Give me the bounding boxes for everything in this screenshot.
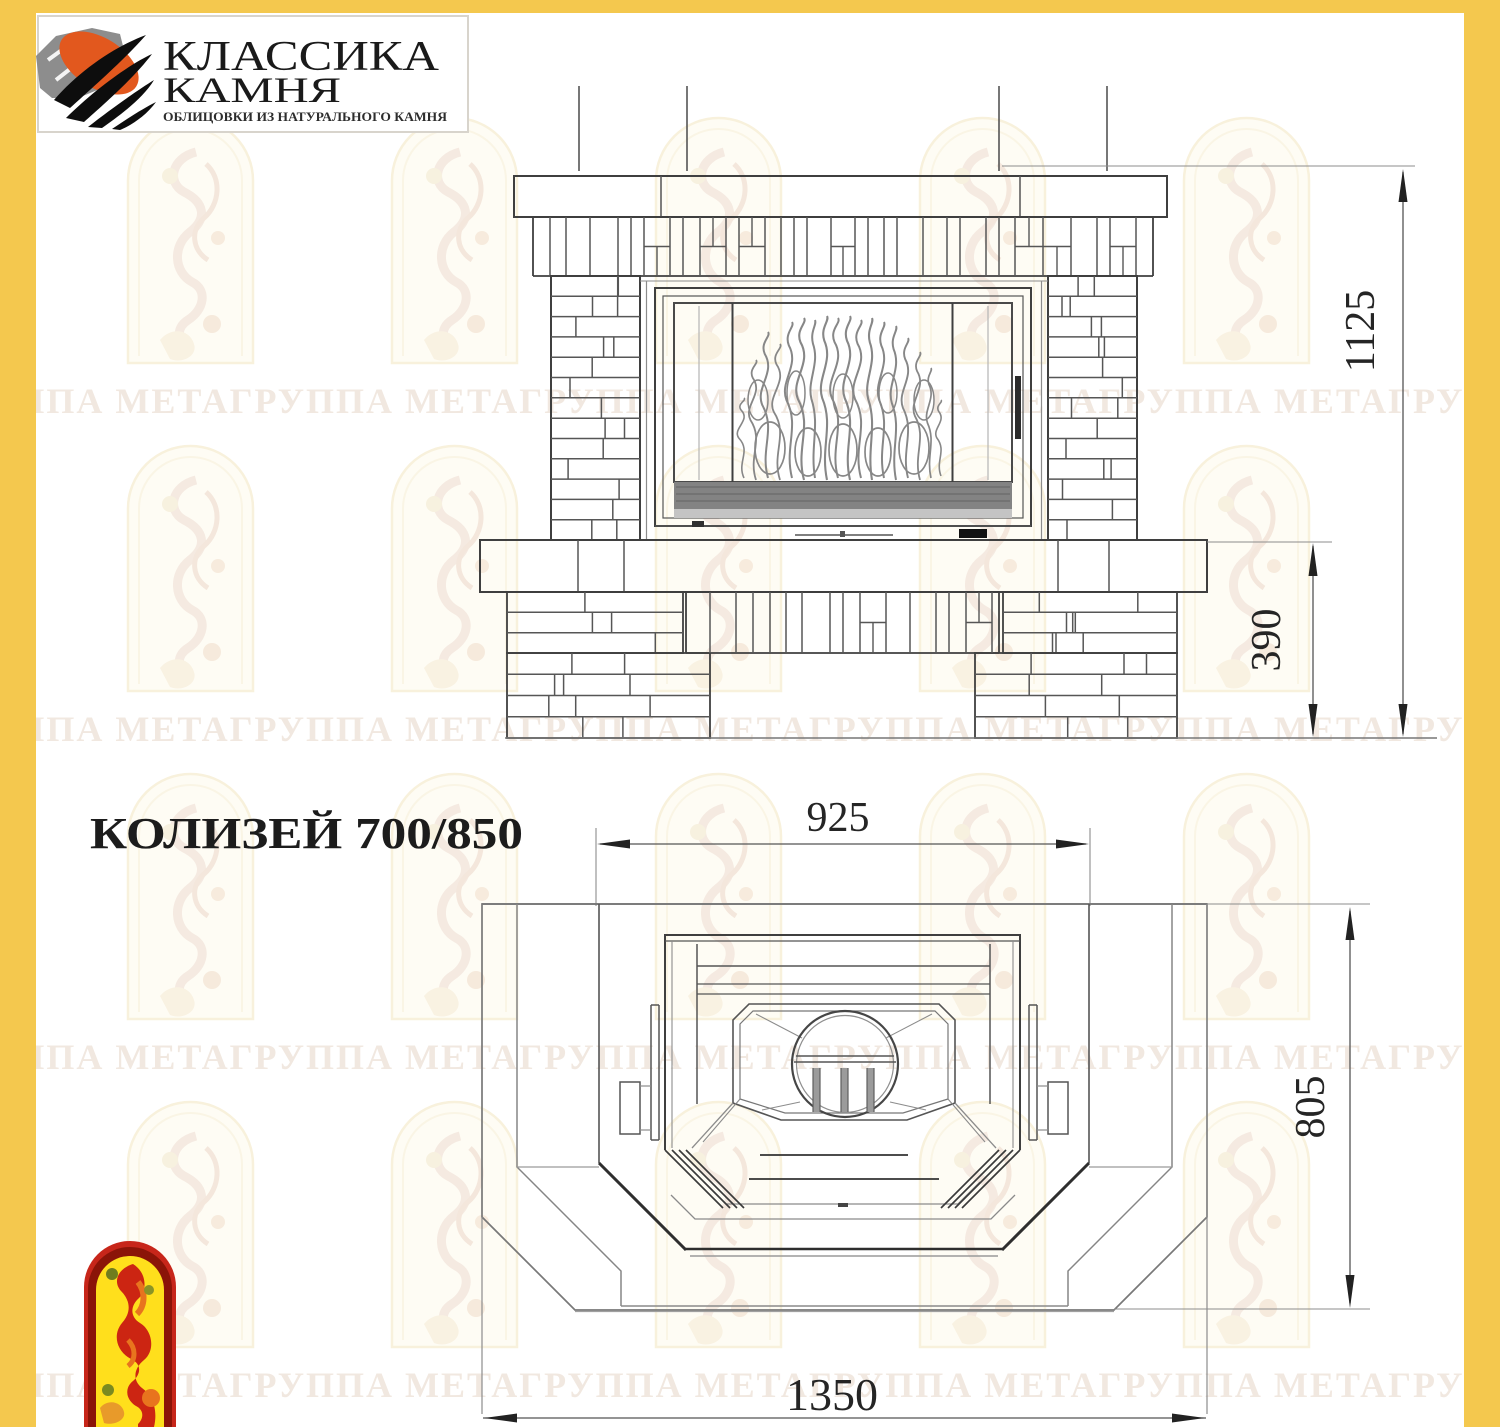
- svg-text:1125: 1125: [1338, 290, 1384, 372]
- svg-text:ГРУППА МЕТАГРУППА МЕТАГРУППА М: ГРУППА МЕТАГРУППА МЕТАГРУППА МЕТАГРУППА …: [0, 709, 1500, 749]
- svg-text:1350: 1350: [786, 1369, 878, 1420]
- svg-text:ГРУППА МЕТАГРУППА МЕТАГРУППА М: ГРУППА МЕТАГРУППА МЕТАГРУППА МЕТАГРУППА …: [0, 1365, 1500, 1405]
- svg-text:ОБЛИЦОВКИ ИЗ НАТУРАЛЬНОГО КАМН: ОБЛИЦОВКИ ИЗ НАТУРАЛЬНОГО КАМНЯ: [163, 110, 447, 124]
- svg-text:КАМНЯ: КАМНЯ: [163, 70, 341, 110]
- svg-text:КОЛИЗЕЙ 700/850: КОЛИЗЕЙ 700/850: [90, 809, 523, 858]
- svg-text:805: 805: [1288, 1076, 1334, 1139]
- svg-text:925: 925: [807, 795, 870, 841]
- svg-text:390: 390: [1244, 609, 1290, 672]
- svg-text:ГРУППА МЕТАГРУППА МЕТАГРУППА М: ГРУППА МЕТАГРУППА МЕТАГРУППА МЕТАГРУППА …: [0, 1037, 1500, 1077]
